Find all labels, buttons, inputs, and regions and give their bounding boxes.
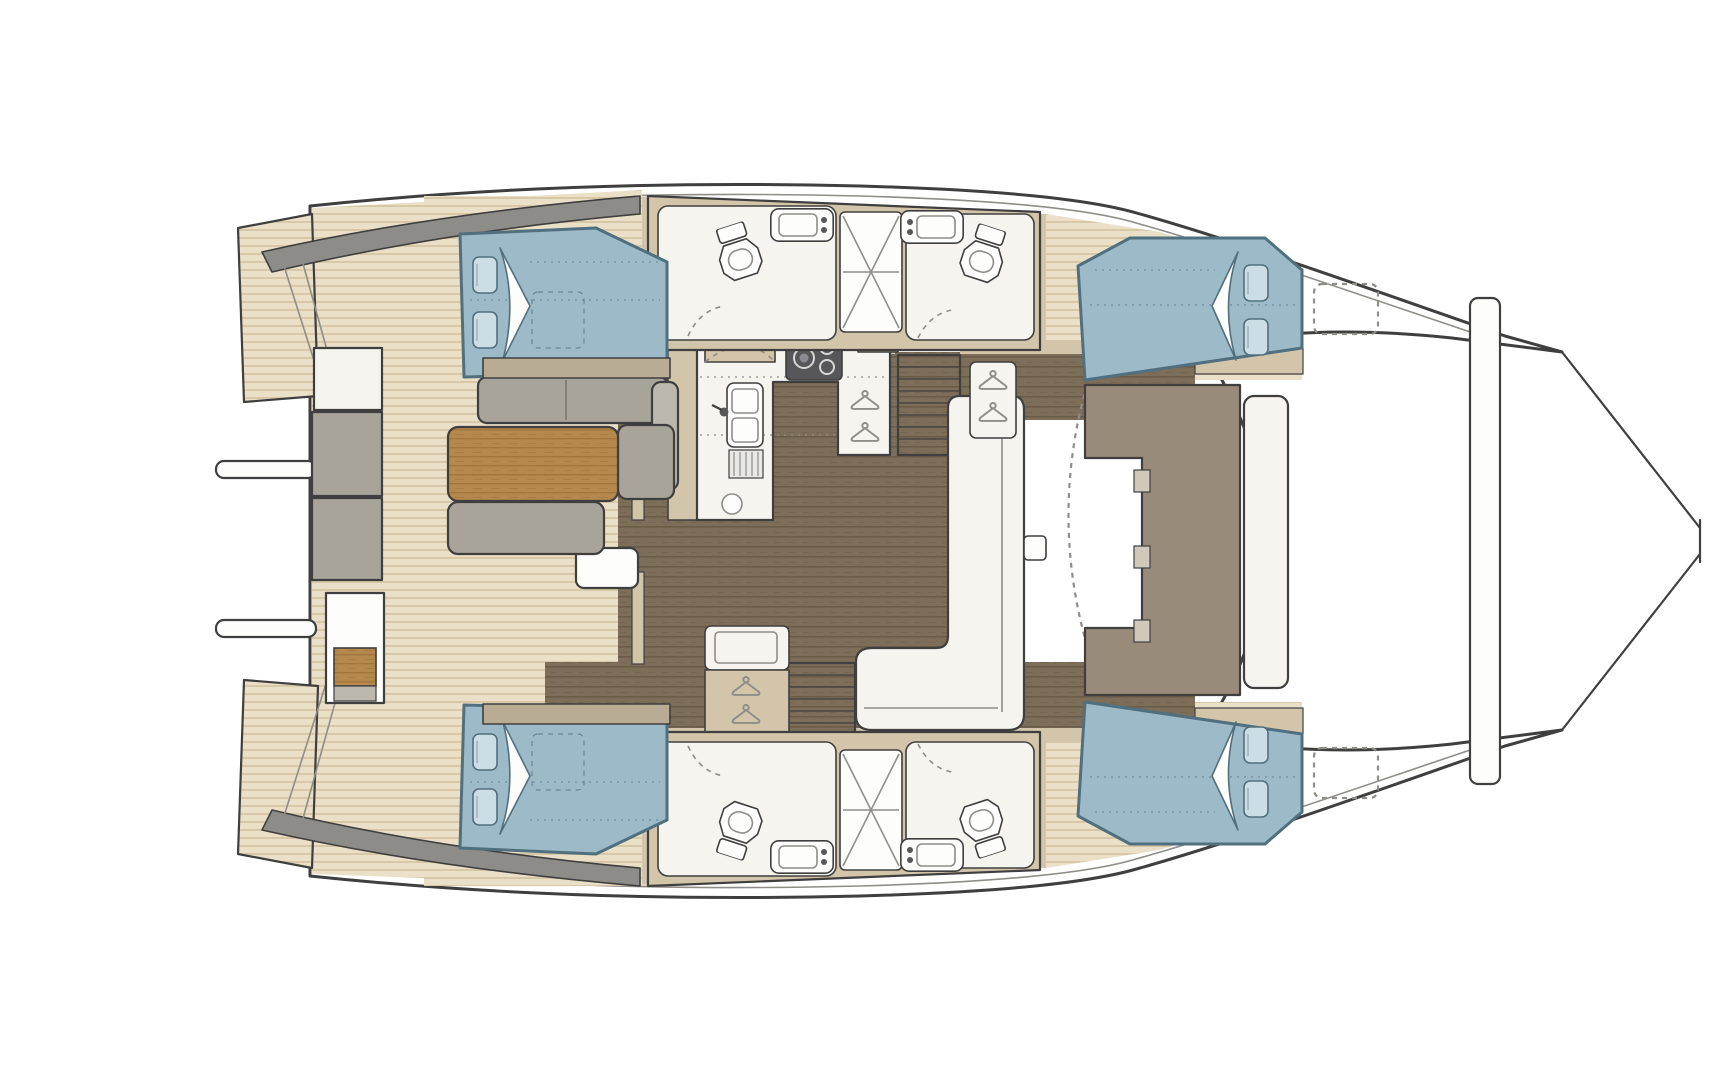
sink-icon — [901, 211, 963, 243]
pillow-icon — [473, 257, 497, 293]
pillow-icon — [1244, 727, 1268, 763]
cupholder — [1134, 470, 1150, 492]
pillow-icon — [1244, 319, 1268, 355]
forestay-bridle-lines — [1562, 352, 1700, 730]
bed-foot-bench — [483, 704, 670, 724]
aft-bench-cushion — [312, 498, 382, 580]
forward-wardrobe — [970, 362, 1016, 438]
shower-icon — [840, 212, 902, 332]
cupholder — [1134, 620, 1150, 642]
bow-area — [1314, 284, 1700, 798]
galley-drainer — [729, 450, 763, 478]
pillow-icon — [1244, 781, 1268, 817]
dinette-bench — [448, 502, 604, 554]
sink-icon — [771, 209, 833, 241]
pillow-icon — [473, 734, 497, 770]
double-bed — [460, 228, 667, 377]
bed-foot-bench — [483, 358, 670, 378]
bathroom-block-top — [648, 196, 1040, 350]
dinette-seat-right — [618, 425, 674, 499]
settee-side-table — [1024, 536, 1046, 560]
bathroom-block-bottom — [648, 732, 1040, 886]
aft-sideboard-wood-top — [334, 648, 376, 686]
aft-locker — [314, 348, 382, 410]
davit-bar-bottom — [216, 620, 316, 637]
aft-sideboard-shelf — [334, 686, 376, 701]
forward-crossbeam — [1470, 298, 1500, 784]
davit-bar-top — [216, 461, 316, 478]
cabin-aft-bottom — [460, 704, 670, 854]
catamaran-floor-plan-page — [0, 0, 1715, 1080]
galley-floor-notch — [773, 380, 838, 422]
double-bed — [460, 705, 667, 854]
cabin-aft-top — [460, 228, 670, 378]
aft-bench-cushion — [312, 412, 382, 496]
catamaran-floor-plan — [0, 0, 1715, 1080]
stairs-bottom-hull — [787, 663, 855, 735]
nav-cabinet — [705, 626, 789, 732]
pillow-icon — [473, 789, 497, 825]
dinette-back-cushion — [478, 377, 668, 423]
salon-table — [448, 427, 618, 501]
pillow-icon — [473, 312, 497, 348]
galley-porthole — [722, 494, 742, 514]
cupholder — [1134, 546, 1150, 568]
forward-cockpit-backrest — [1244, 396, 1288, 688]
pillow-icon — [1244, 265, 1268, 301]
